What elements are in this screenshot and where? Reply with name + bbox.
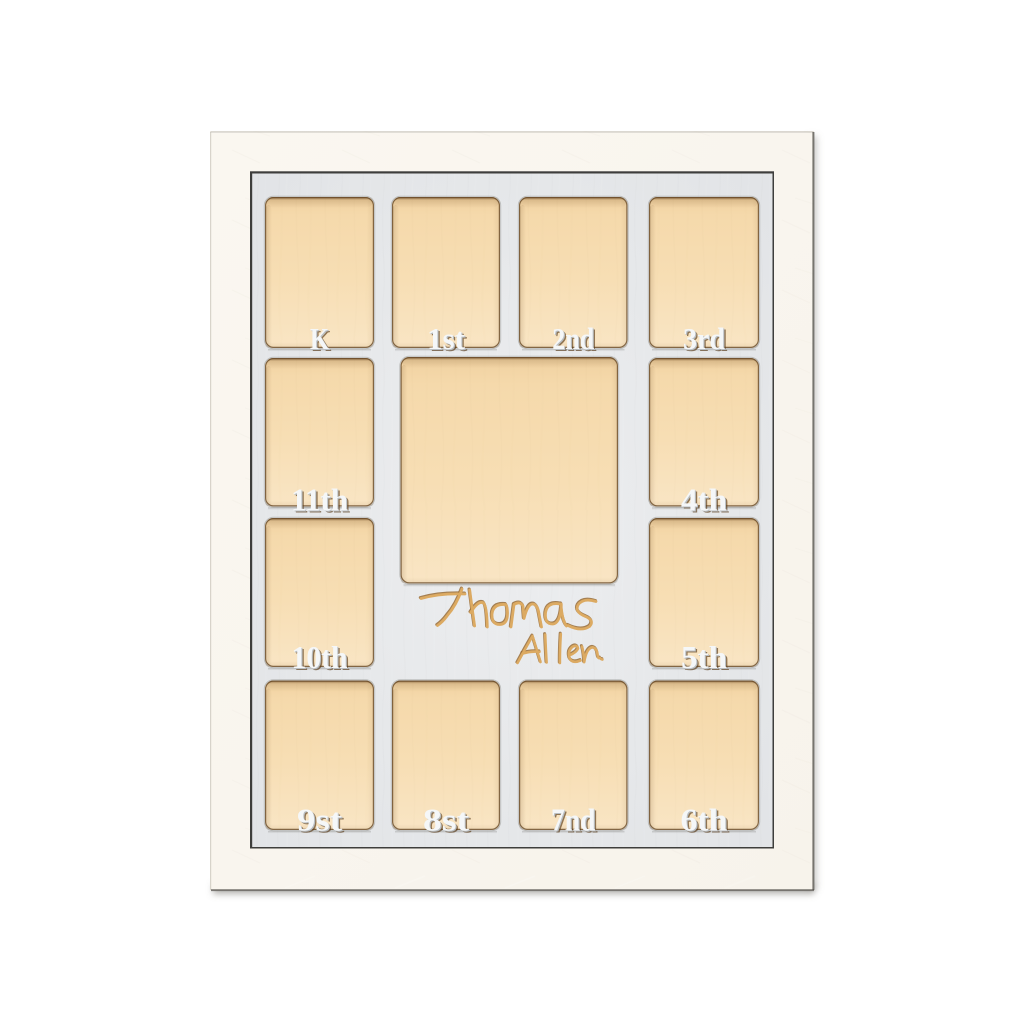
svg-text:6th: 6th — [681, 803, 729, 838]
svg-text:2nd: 2nd — [552, 321, 594, 356]
svg-text:4th: 4th — [681, 482, 727, 518]
svg-text:5th: 5th — [681, 639, 727, 675]
svg-text:11th: 11th — [291, 482, 348, 518]
svg-text:K: K — [310, 321, 329, 356]
svg-text:8st: 8st — [423, 803, 470, 838]
svg-text:10th: 10th — [292, 639, 348, 675]
svg-text:9st: 9st — [297, 803, 343, 838]
svg-text:3rd: 3rd — [683, 321, 725, 356]
svg-text:7nd: 7nd — [551, 803, 596, 838]
svg-text:1st: 1st — [427, 321, 466, 356]
